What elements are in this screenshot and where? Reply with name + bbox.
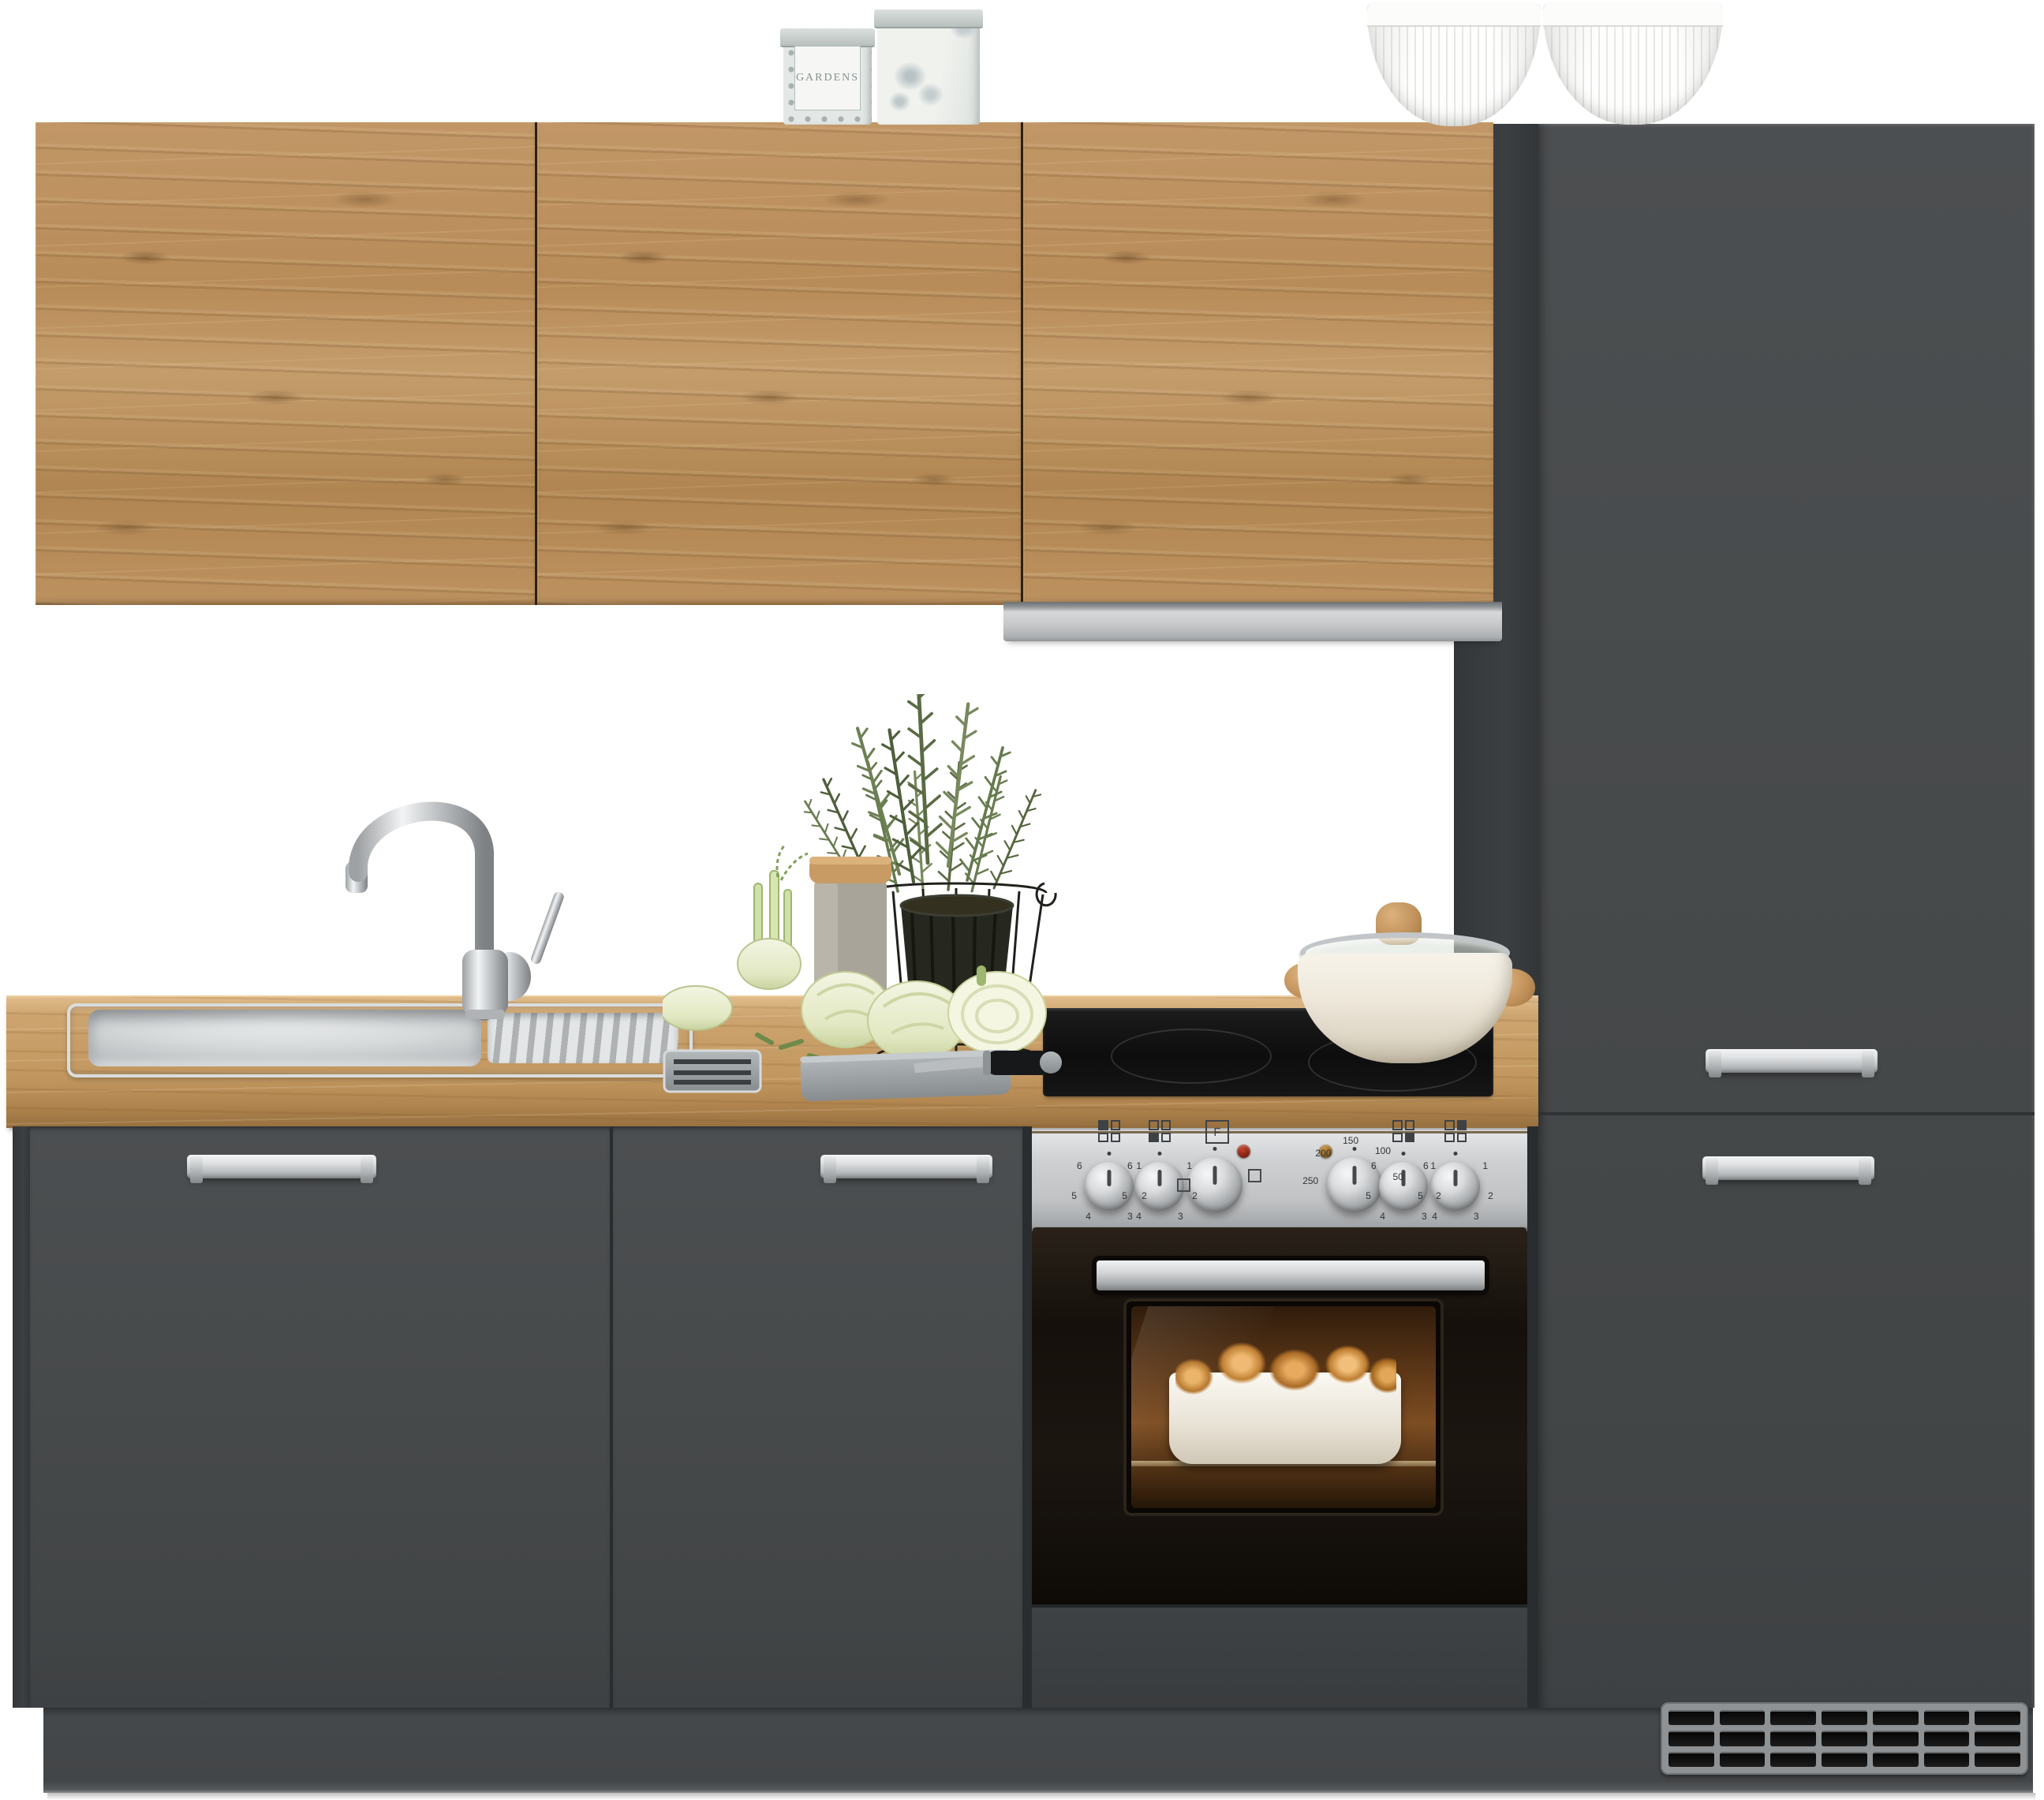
vent-grille-slot: [1822, 1752, 1867, 1767]
vent-grille-slot: [1924, 1731, 1970, 1746]
wall-cabinets: [35, 122, 1493, 605]
dial-scale-label: 5: [1122, 1190, 1127, 1201]
dial-scale-label: 2: [1488, 1190, 1493, 1201]
dial-scale-label: 6: [1371, 1160, 1377, 1171]
oven-door-handle: [1097, 1260, 1485, 1290]
counter-props: [663, 694, 1065, 1104]
burner-icon-1: [1098, 1120, 1120, 1142]
oven-knob-1: [1085, 1162, 1134, 1211]
vent-grille-slot: [1822, 1731, 1867, 1746]
burner-ring-left: [1111, 1029, 1272, 1084]
oven-knob-function: [1187, 1157, 1242, 1212]
tall-cabinet: [1538, 124, 2035, 1708]
vent-grille-slot: [1975, 1752, 2020, 1767]
floor-shadow: [47, 1793, 2035, 1800]
vent-grille: [1661, 1702, 2028, 1775]
dial-scale-label: 3: [1178, 1211, 1183, 1222]
vent-grille-slot: [1975, 1731, 2020, 1746]
oven-function-icon: [1177, 1178, 1190, 1192]
oven-function-icon: [1248, 1169, 1261, 1182]
dial-scale-label: 100: [1375, 1145, 1391, 1156]
burner-icon-5: [1392, 1120, 1414, 1142]
tall-cabinet-handle-upper: [1706, 1049, 1878, 1073]
bowl-rim: [1367, 2, 1541, 27]
dial-scale-label: 5: [1366, 1190, 1371, 1201]
vent-grille-slot: [1822, 1710, 1867, 1725]
tin-label: GARDENS: [794, 46, 861, 110]
vent-grille-slot: [1720, 1731, 1766, 1746]
vent-grille-slot: [1770, 1731, 1816, 1746]
vent-grille-slot: [1873, 1731, 1919, 1746]
dial-scale-label: 150: [1343, 1135, 1358, 1146]
vent-grille-slot: [1924, 1752, 1970, 1767]
wall-cabinet-door-1: [35, 122, 535, 605]
faucet-mixer-body: [462, 950, 508, 1016]
bowl-rim: [1543, 2, 1723, 27]
dial-scale-label: 4: [1086, 1211, 1091, 1222]
dial-scale-label: 2: [1436, 1190, 1441, 1201]
tall-cabinet-upper-door: [1538, 124, 2035, 1112]
tin-lid: [780, 28, 875, 47]
oven-lower-front: [1032, 1604, 1527, 1708]
dial-scale-label: 1: [1430, 1160, 1436, 1171]
base-cabinet-handle-2: [820, 1155, 992, 1178]
vent-grille-slot: [1720, 1710, 1766, 1725]
dial-scale-label: 50: [1392, 1171, 1403, 1182]
fennel-stalks: [754, 846, 808, 954]
decorative-tin-small: GARDENS: [783, 28, 872, 125]
dial-scale-label: 6: [1077, 1160, 1082, 1171]
dial-scale-label: 5: [1071, 1190, 1077, 1201]
oven-knob-6: [1431, 1162, 1480, 1211]
oven-door: [1032, 1227, 1527, 1604]
kitchen-product-photo: GARDENS: [0, 0, 2044, 1800]
dial-scale-label: 4: [1380, 1211, 1385, 1222]
oven-window: [1123, 1298, 1444, 1516]
oven-function-symbol: F: [1205, 1120, 1229, 1144]
base-cabinet-handle-1: [187, 1155, 376, 1178]
serving-tray: [664, 1051, 760, 1092]
vent-grille-slot: [1873, 1752, 1919, 1767]
tall-cabinet-lower-door: [1538, 1115, 2035, 1708]
dial-scale-label: 5: [1418, 1190, 1423, 1201]
dial-scale-label: 3: [1422, 1211, 1427, 1222]
dial-scale-label: 3: [1127, 1211, 1133, 1222]
dial-scale-label: 250: [1302, 1175, 1318, 1186]
dial-scale-label: 1: [1186, 1160, 1192, 1171]
faucet: [339, 773, 592, 1025]
faucet-base: [465, 1010, 505, 1019]
range-hood: [1003, 602, 1502, 641]
burner-icon-6: [1444, 1120, 1467, 1142]
oven-indicator-light-red: [1237, 1145, 1250, 1158]
dial-scale-label: 4: [1432, 1211, 1437, 1222]
faucet-lever: [529, 891, 565, 965]
tin-lid: [874, 9, 983, 28]
white-bowl-2: [1543, 2, 1723, 125]
vent-grille-slot: [1975, 1710, 2020, 1725]
fennel-piece-left: [663, 986, 732, 1030]
dial-scale-label: 4: [1136, 1211, 1142, 1222]
decorative-tin-large: [877, 9, 980, 125]
wall-cabinet-door-2: [537, 122, 1021, 605]
vent-grille-slot: [1668, 1731, 1714, 1746]
base-cabinet-door-2: [613, 1126, 1022, 1708]
dial-scale-label: 2: [1142, 1190, 1147, 1201]
vent-grille-slot: [1668, 1752, 1714, 1767]
dial-scale-label: 200: [1315, 1148, 1331, 1159]
dial-scale-label: 6: [1423, 1160, 1429, 1171]
base-cabinet-door-1: [30, 1126, 610, 1708]
oven-gap-right: [1527, 1126, 1538, 1708]
tall-cabinet-handle-lower: [1702, 1156, 1874, 1180]
vent-grille-slot: [1770, 1752, 1816, 1767]
dial-scale-label: 6: [1127, 1160, 1133, 1171]
dial-scale-label: 2: [1192, 1190, 1198, 1201]
dial-scale-label: 1: [1482, 1160, 1488, 1171]
oven-interior-glow: [1131, 1306, 1436, 1508]
vent-grille-slot: [1770, 1710, 1816, 1725]
base-cabinet-side-panel: [13, 1126, 30, 1708]
vent-grille-slot: [1720, 1752, 1766, 1767]
vent-grille-slot: [1668, 1710, 1714, 1725]
burner-icon-2: [1149, 1120, 1171, 1142]
oven-knob-5: [1379, 1162, 1428, 1211]
vent-grille-slot: [1924, 1710, 1970, 1725]
oven-gap-left: [1022, 1126, 1032, 1708]
dial-scale-label: 1: [1136, 1160, 1142, 1171]
white-bowl-1: [1367, 2, 1541, 126]
wall-cabinet-door-3: [1023, 122, 1493, 605]
vent-grille-slot: [1873, 1710, 1919, 1725]
dial-scale-label: 3: [1474, 1211, 1479, 1222]
